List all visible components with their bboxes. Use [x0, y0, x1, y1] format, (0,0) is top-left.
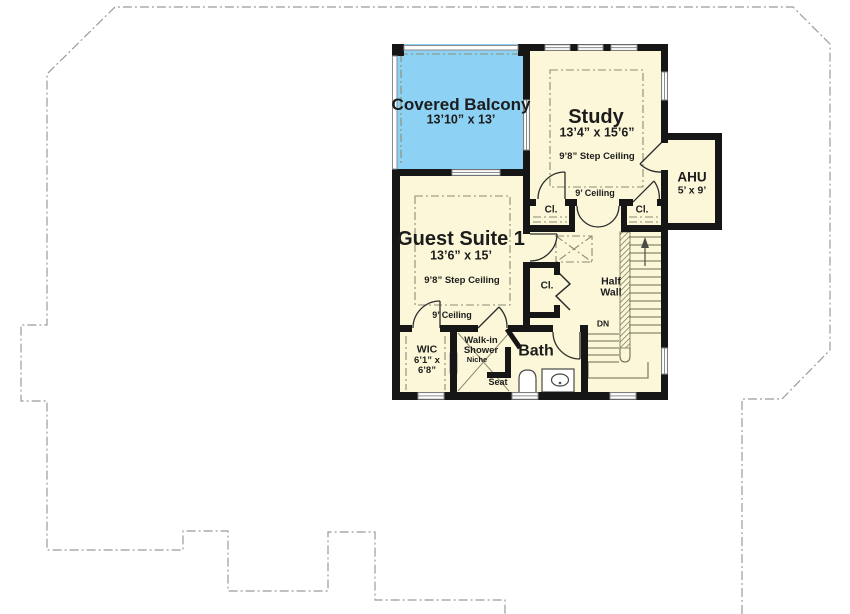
- shower-seat-label: Seat: [488, 378, 507, 388]
- closet-upper-right-label: Cl.: [636, 206, 649, 217]
- toilet: [519, 370, 536, 392]
- covered-balcony-dims: 13’10” x 13’: [427, 113, 496, 127]
- bath-name: Bath: [518, 342, 554, 359]
- guest-suite-dims: 13’6” x 15’: [430, 249, 492, 263]
- closet-hall-label: Cl.: [541, 282, 554, 293]
- balcony-post: [392, 44, 404, 56]
- ahu-name: AHU: [677, 171, 706, 186]
- wic-dims: 6’1” x 6’8”: [414, 356, 440, 377]
- study-dims: 13’4” x 15’6”: [559, 126, 634, 140]
- ahu-dims: 5’ x 9’: [678, 185, 707, 196]
- guest-suite-ceiling-note: 9’ Ceiling: [432, 311, 472, 321]
- shower-niche-label: Niche: [467, 356, 487, 364]
- balcony-post: [518, 44, 530, 56]
- guest-suite-step-ceiling-note: 9’8” Step Ceiling: [424, 276, 500, 286]
- stairs-down-label: DN: [597, 319, 609, 328]
- half-wall-label: Half Wall: [600, 277, 621, 300]
- closet-upper-left-label: Cl.: [545, 206, 558, 217]
- study-step-ceiling-note: 9’8” Step Ceiling: [559, 152, 635, 162]
- walk-in-shower-label: Walk-in Shower: [464, 336, 498, 357]
- study-ceiling-note: 9’ Ceiling: [575, 189, 615, 199]
- floor-plan: Covered Balcony 13’10” x 13’ Study 13’4”…: [0, 0, 850, 614]
- floor-plan-drawing: [0, 0, 850, 614]
